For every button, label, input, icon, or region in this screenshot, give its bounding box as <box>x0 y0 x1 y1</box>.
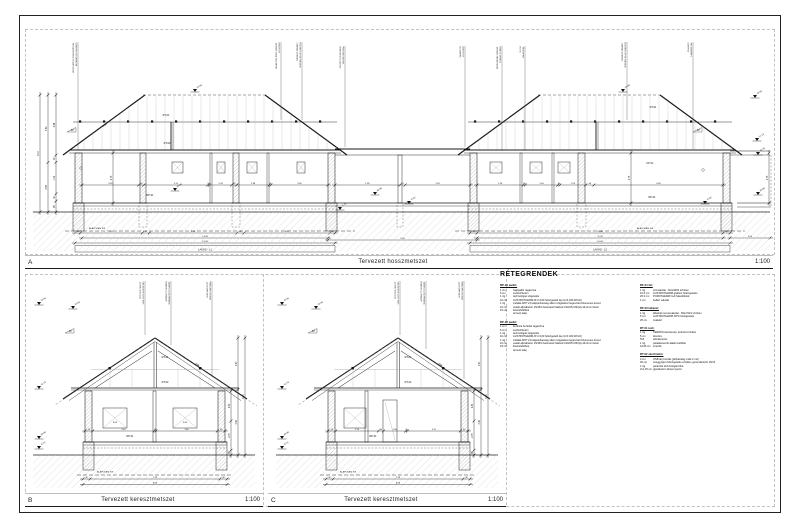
svg-text:30: 30 <box>54 157 56 160</box>
svg-text:ERESZCSATORNA: ERESZCSATORNA <box>209 281 212 300</box>
title-strip-a: A Tervezett hosszmetszet 1:100 <box>25 255 773 269</box>
svg-text:2.75: 2.75 <box>767 175 769 180</box>
svg-text:-1.43: -1.43 <box>342 203 348 208</box>
legend-block: RT-01 tető:1 rtgTERRÁN tetőcserép, antra… <box>640 327 772 348</box>
section-title-a: Tervezett hosszmetszet <box>50 259 736 265</box>
svg-text:±0.00: ±0.00 <box>760 187 767 192</box>
legend-block-heading: RF-02 lábazat: <box>640 307 772 311</box>
section-scale-a: 1:100 <box>736 259 773 265</box>
svg-text:30°: 30° <box>71 129 75 132</box>
legend-block-heading: RP-01 padló: <box>500 284 632 288</box>
legend-row: 2x1,25 cmgipszkarton álmennyezet <box>640 368 772 371</box>
svg-text:ALAPOZÁSI SÍK: ALAPOZÁSI SÍK <box>97 471 114 474</box>
legend-col-1: RP-01 padló:1 cmhajópadló ragasztva6 cme… <box>500 284 632 376</box>
svg-text:-0.43: -0.43 <box>411 197 417 202</box>
svg-text:3.60: 3.60 <box>113 422 118 424</box>
svg-text:RT-01: RT-01 <box>163 114 170 117</box>
svg-text:+5.60: +5.60 <box>757 90 764 95</box>
legend-block: RP-01 padló:1 cmhajópadló ragasztva6 cme… <box>500 284 632 316</box>
legend-block-heading: RF-01 fal: <box>640 284 772 288</box>
section-letter-b: B <box>25 497 50 504</box>
svg-text:BEJÁRATI NYÍLÁSZÁRÓ: BEJÁRATI NYÍLÁSZÁRÓ <box>75 42 78 66</box>
legend-row: 25 cmzsalukő <box>640 319 772 322</box>
svg-text:+5.60: +5.60 <box>625 84 632 89</box>
section-title-c: Tervezett keresztmetszet <box>293 497 469 503</box>
section-c-drawing: ALAPOZÁSI SÍK452.50301.30103.1045407.284… <box>268 273 506 493</box>
section-title-b: Tervezett keresztmetszet <box>50 497 226 503</box>
svg-text:RT-01: RT-01 <box>405 356 412 359</box>
section-a-drawing: 3.28303.70101.28301.88103.30303.52404.98… <box>25 28 773 254</box>
legend-block: RF-02 lábazat:1 rtglábazati nemesvakolat… <box>640 307 772 322</box>
svg-text:RT-02: RT-02 <box>405 381 412 384</box>
svg-text:2.75: 2.75 <box>229 433 231 438</box>
title-strip-c: C Tervezett keresztmetszet 1:100 <box>268 493 506 507</box>
svg-text:VASBETON: VASBETON <box>459 46 462 58</box>
section-letter-c: C <box>268 497 293 504</box>
svg-text:TERVEN JELÖLT HELYEN: TERVEN JELÖLT HELYEN <box>299 42 302 68</box>
svg-text:KOSZORÚ: KOSZORÚ <box>278 42 281 53</box>
drawing-sheet-page: 3.28303.70101.28301.88103.30303.52404.98… <box>0 0 800 527</box>
legend-block-heading: RT-02 zárófödém: <box>640 353 772 357</box>
svg-text:2.80: 2.80 <box>229 403 231 408</box>
svg-text:HORGANYZOTT: HORGANYZOTT <box>206 281 209 298</box>
section-letter-a: A <box>25 259 50 266</box>
legend-block-heading: RT-01 tető: <box>640 327 772 331</box>
svg-text:3.40: 3.40 <box>236 419 238 424</box>
svg-text:45: 45 <box>54 205 56 208</box>
svg-text:-0.73: -0.73 <box>41 442 47 447</box>
svg-text:RT-02: RT-02 <box>164 142 171 145</box>
svg-text:ALAPOZÁSI SÍK: ALAPOZÁSI SÍK <box>89 227 106 230</box>
svg-text:KOSZORÚ: KOSZORÚ <box>462 46 465 57</box>
layer-legend: RÉTEGRENDEK RP-01 padló:1 cmhajópadló ra… <box>500 270 776 498</box>
section-b-drawing: 3.603.60ALAPOZÁSI SÍK453.60103.6045407.2… <box>25 273 263 493</box>
svg-text:ALAPOZÁSI SÍK: ALAPOZÁSI SÍK <box>340 471 357 474</box>
legend-block: RF-01 fal:1 rtgszínvakolat - RAL9003 szí… <box>640 284 772 302</box>
svg-text:2.75: 2.75 <box>111 175 113 180</box>
svg-text:ERESZCSATORNA: ERESZCSATORNA <box>461 281 464 300</box>
svg-text:ZSALUKŐ: ZSALUKŐ <box>687 42 690 52</box>
svg-text:1.30: 1.30 <box>54 175 56 180</box>
svg-text:RT-02: RT-02 <box>162 381 169 384</box>
svg-text:2.58: 2.58 <box>46 184 48 189</box>
svg-text:+2.73: +2.73 <box>284 381 291 386</box>
legend-block: RP-02 padló:1 cmkerámia burkolat ragaszt… <box>500 321 632 353</box>
svg-text:VASBETON TERV SZERINT: VASBETON TERV SZERINT <box>275 42 278 69</box>
svg-text:30°: 30° <box>697 129 701 132</box>
svg-text:RÉTEGREND SZERINT: RÉTEGREND SZERINT <box>496 46 499 69</box>
svg-text:2.80: 2.80 <box>472 403 474 408</box>
svg-text:±0.00: ±0.00 <box>377 187 384 192</box>
svg-text:2.75: 2.75 <box>472 433 474 438</box>
legend-block: RT-02 zárófödém:2 cmOSB lap borítás (jár… <box>640 353 772 371</box>
svg-text:3.60: 3.60 <box>183 422 188 424</box>
svg-text:±0.00: ±0.00 <box>284 431 291 436</box>
svg-text:TERRÁN TETŐCSERÉP: TERRÁN TETŐCSERÉP <box>168 281 171 305</box>
svg-text:6.10: 6.10 <box>243 394 245 399</box>
svg-text:30°: 30° <box>69 330 73 333</box>
legend-col-2: RF-01 fal:1 rtgszínvakolat - RAL9003 szí… <box>640 284 772 376</box>
svg-text:+5.60: +5.60 <box>75 301 82 306</box>
svg-text:6.10: 6.10 <box>38 151 40 156</box>
svg-text:ANTRACIT SZÍNBEN: ANTRACIT SZÍNBEN <box>165 281 168 301</box>
svg-text:VÁLASZFAL: VÁLASZFAL <box>522 46 525 59</box>
svg-text:RT-01: RT-01 <box>650 106 657 109</box>
svg-text:TERRÁN TETŐCSERÉP: TERRÁN TETŐCSERÉP <box>423 281 426 305</box>
svg-text:+5.66: +5.66 <box>284 297 291 302</box>
svg-text:±0.00: ±0.00 <box>41 431 48 436</box>
svg-text:LÁBAZATI FAL: LÁBAZATI FAL <box>690 42 693 57</box>
svg-text:10 CM: 10 CM <box>520 46 522 52</box>
svg-text:SZERELT KÉMÉNY: SZERELT KÉMÉNY <box>296 42 299 61</box>
svg-text:TETŐSÍK FELETT: TETŐSÍK FELETT <box>394 281 397 299</box>
section-scale-b: 1:100 <box>226 497 263 503</box>
panel-b-c-divider <box>263 274 264 505</box>
svg-text:SZELLŐZŐ KIVEZETÉS: SZELLŐZŐ KIVEZETÉS <box>397 281 400 304</box>
svg-text:+1.13: +1.13 <box>759 133 766 138</box>
svg-text:3.52: 3.52 <box>46 126 48 131</box>
legend-row: termett talaj <box>500 349 632 352</box>
svg-text:5.34: 5.34 <box>103 124 108 129</box>
svg-text:TETŐSÍK FELETT: TETŐSÍK FELETT <box>139 281 142 299</box>
svg-text:HŐSZIGETELŐ ÜVEGEZÉSSEL: HŐSZIGETELŐ ÜVEGEZÉSSEL <box>72 42 75 73</box>
svg-text:FESTETT KIVITELBEN: FESTETT KIVITELBEN <box>340 46 342 68</box>
legend-row: 10/15 cmszarufa <box>640 345 772 348</box>
title-strip-b: B Tervezett keresztmetszet 1:100 <box>25 493 263 507</box>
svg-text:ALAPOZÁSI SÍK: ALAPOZÁSI SÍK <box>637 227 654 230</box>
svg-text:3.40: 3.40 <box>479 419 481 424</box>
svg-text:+2.73: +2.73 <box>41 381 48 386</box>
svg-text:TERVEN JELÖLT HELYEN: TERVEN JELÖLT HELYEN <box>624 42 627 68</box>
svg-text:+5.66: +5.66 <box>41 297 48 302</box>
svg-text:RP-01: RP-01 <box>126 435 134 438</box>
svg-text:RT-01: RT-01 <box>162 356 169 359</box>
svg-text:+5.60: +5.60 <box>318 301 325 306</box>
svg-text:+2.75: +2.75 <box>760 147 767 152</box>
svg-text:ANTRACIT SZÍNBEN: ANTRACIT SZÍNBEN <box>420 281 423 301</box>
svg-text:SZEGÉLYDESZKA: SZEGÉLYDESZKA <box>342 46 345 64</box>
svg-text:-0.73: -0.73 <box>284 442 290 447</box>
legend-title: RÉTEGRENDEK <box>500 270 776 279</box>
svg-text:2.67: 2.67 <box>236 361 238 366</box>
svg-text:30: 30 <box>54 195 56 198</box>
svg-text:SZELLŐZŐ KIVEZETÉS: SZELLŐZŐ KIVEZETÉS <box>142 281 145 304</box>
legend-columns: RP-01 padló:1 cmhajópadló ragasztva6 cme… <box>500 284 776 376</box>
svg-text:+5.60: +5.60 <box>197 84 204 89</box>
svg-text:KP-01: KP-01 <box>647 162 655 165</box>
svg-text:30°: 30° <box>312 330 316 333</box>
svg-text:6.10: 6.10 <box>486 394 488 399</box>
svg-text:2.67: 2.67 <box>479 361 481 366</box>
svg-text:SZERELT KÉMÉNY: SZERELT KÉMÉNY <box>621 42 624 61</box>
svg-text:2.75: 2.75 <box>629 175 631 180</box>
svg-text:RP-01: RP-01 <box>369 435 377 438</box>
legend-row: 1 cmbeltéri vakolat <box>640 299 772 302</box>
svg-text:RP-01: RP-01 <box>648 196 656 199</box>
svg-text:RP-01: RP-01 <box>146 194 154 197</box>
svg-text:HORGANYZOTT: HORGANYZOTT <box>458 281 461 298</box>
legend-block-heading: RP-02 padló: <box>500 321 632 325</box>
svg-text:TERASZ FÖDÉM: TERASZ FÖDÉM <box>499 46 502 63</box>
legend-row: termett talaj <box>500 312 632 315</box>
svg-text:-0.45: -0.45 <box>707 197 713 202</box>
svg-text:2.48: 2.48 <box>54 122 56 127</box>
